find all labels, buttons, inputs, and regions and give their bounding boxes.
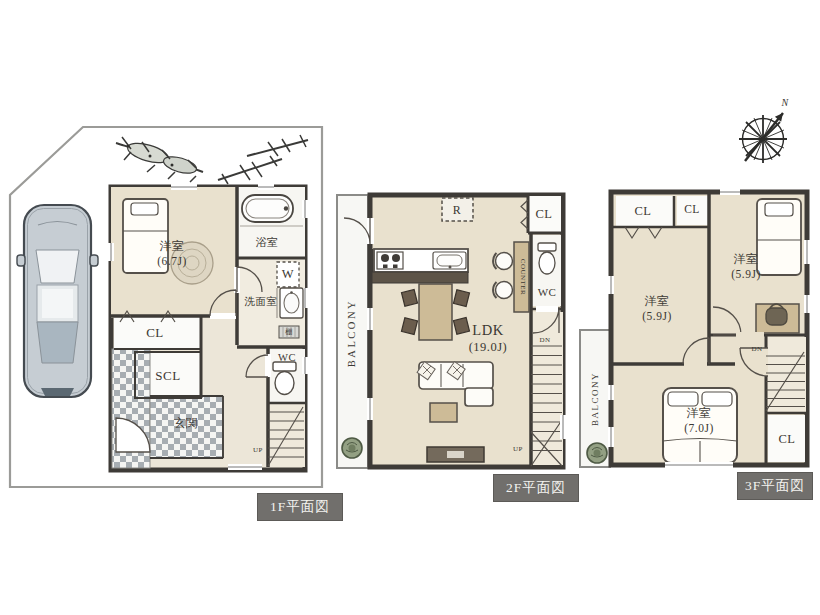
bath-label: 浴室	[256, 237, 279, 248]
washer-label: W	[282, 268, 294, 281]
bedroom-1f-size: (6.7J)	[157, 256, 187, 268]
caption-1f: 1F平面図	[257, 493, 343, 521]
desk-icon	[756, 304, 799, 333]
washroom-label: 洗面室	[245, 297, 278, 308]
closet-3f-a-label: CL	[635, 205, 652, 218]
closet-2f-label: CL	[536, 208, 553, 221]
closet-3f-b-label: CL	[684, 204, 700, 216]
stairs-3f-area	[768, 337, 806, 412]
balcony-2f-label: BALCONY	[347, 299, 358, 367]
car-icon	[17, 205, 98, 397]
coffee-table-icon	[430, 403, 457, 422]
closet-3f-c-label: CL	[779, 433, 796, 446]
toilet-icon-1f	[273, 362, 296, 395]
bedroom-main-label: 洋室	[687, 407, 712, 419]
refrigerator-label: R	[453, 204, 462, 216]
wc-1f-label: WC	[278, 353, 296, 364]
closet-1f-label: CL	[146, 326, 164, 339]
toilet-icon-2f	[538, 243, 556, 274]
up-1f-label: UP	[253, 447, 263, 454]
caption-2f: 2F平面図	[493, 474, 579, 502]
compass-rose	[739, 113, 787, 163]
tv-board-icon	[427, 447, 484, 462]
floor-plan-drawing	[0, 0, 820, 615]
shoe-closet-label: SCL	[155, 369, 180, 382]
plant-icon	[342, 438, 362, 458]
floor2-panel	[337, 195, 566, 468]
bedroom-main-size: (7.0J)	[684, 423, 714, 435]
ldk-size: (19.0J)	[469, 341, 508, 354]
up-2f-label: UP	[513, 446, 523, 453]
bed-icon-3f-right	[757, 199, 801, 275]
dn-2f-label: DN	[539, 337, 550, 344]
floor-plan-canvas: 洋室 (6.7J) 浴室 W 洗面室 棚 CL SCL 玄関 WC UP 1F平…	[0, 0, 820, 615]
balcony-3f-label: BALCONY	[591, 372, 600, 426]
sink-icon	[277, 288, 303, 318]
wc-2f-label: WC	[538, 287, 557, 298]
bedroom-left-size: (5.9J)	[642, 311, 672, 323]
shelf-label: 棚	[285, 329, 293, 336]
bedroom-right-size: (5.9J)	[731, 269, 761, 281]
caption-3f: 3F平面図	[737, 472, 813, 500]
ldk-label: LDK	[472, 323, 503, 338]
bedroom-right-label: 洋室	[734, 253, 759, 265]
bedroom-1f-label: 洋室	[160, 240, 185, 252]
plant-icon-3f	[587, 443, 607, 463]
compass-north-label: N	[781, 98, 788, 108]
counter-label: COUNTER	[518, 259, 525, 296]
kitchen-icon	[372, 249, 468, 283]
dn-3f-label: DN	[751, 346, 762, 353]
entrance-label: 玄関	[174, 418, 198, 430]
bedroom-left-label: 洋室	[645, 295, 670, 307]
